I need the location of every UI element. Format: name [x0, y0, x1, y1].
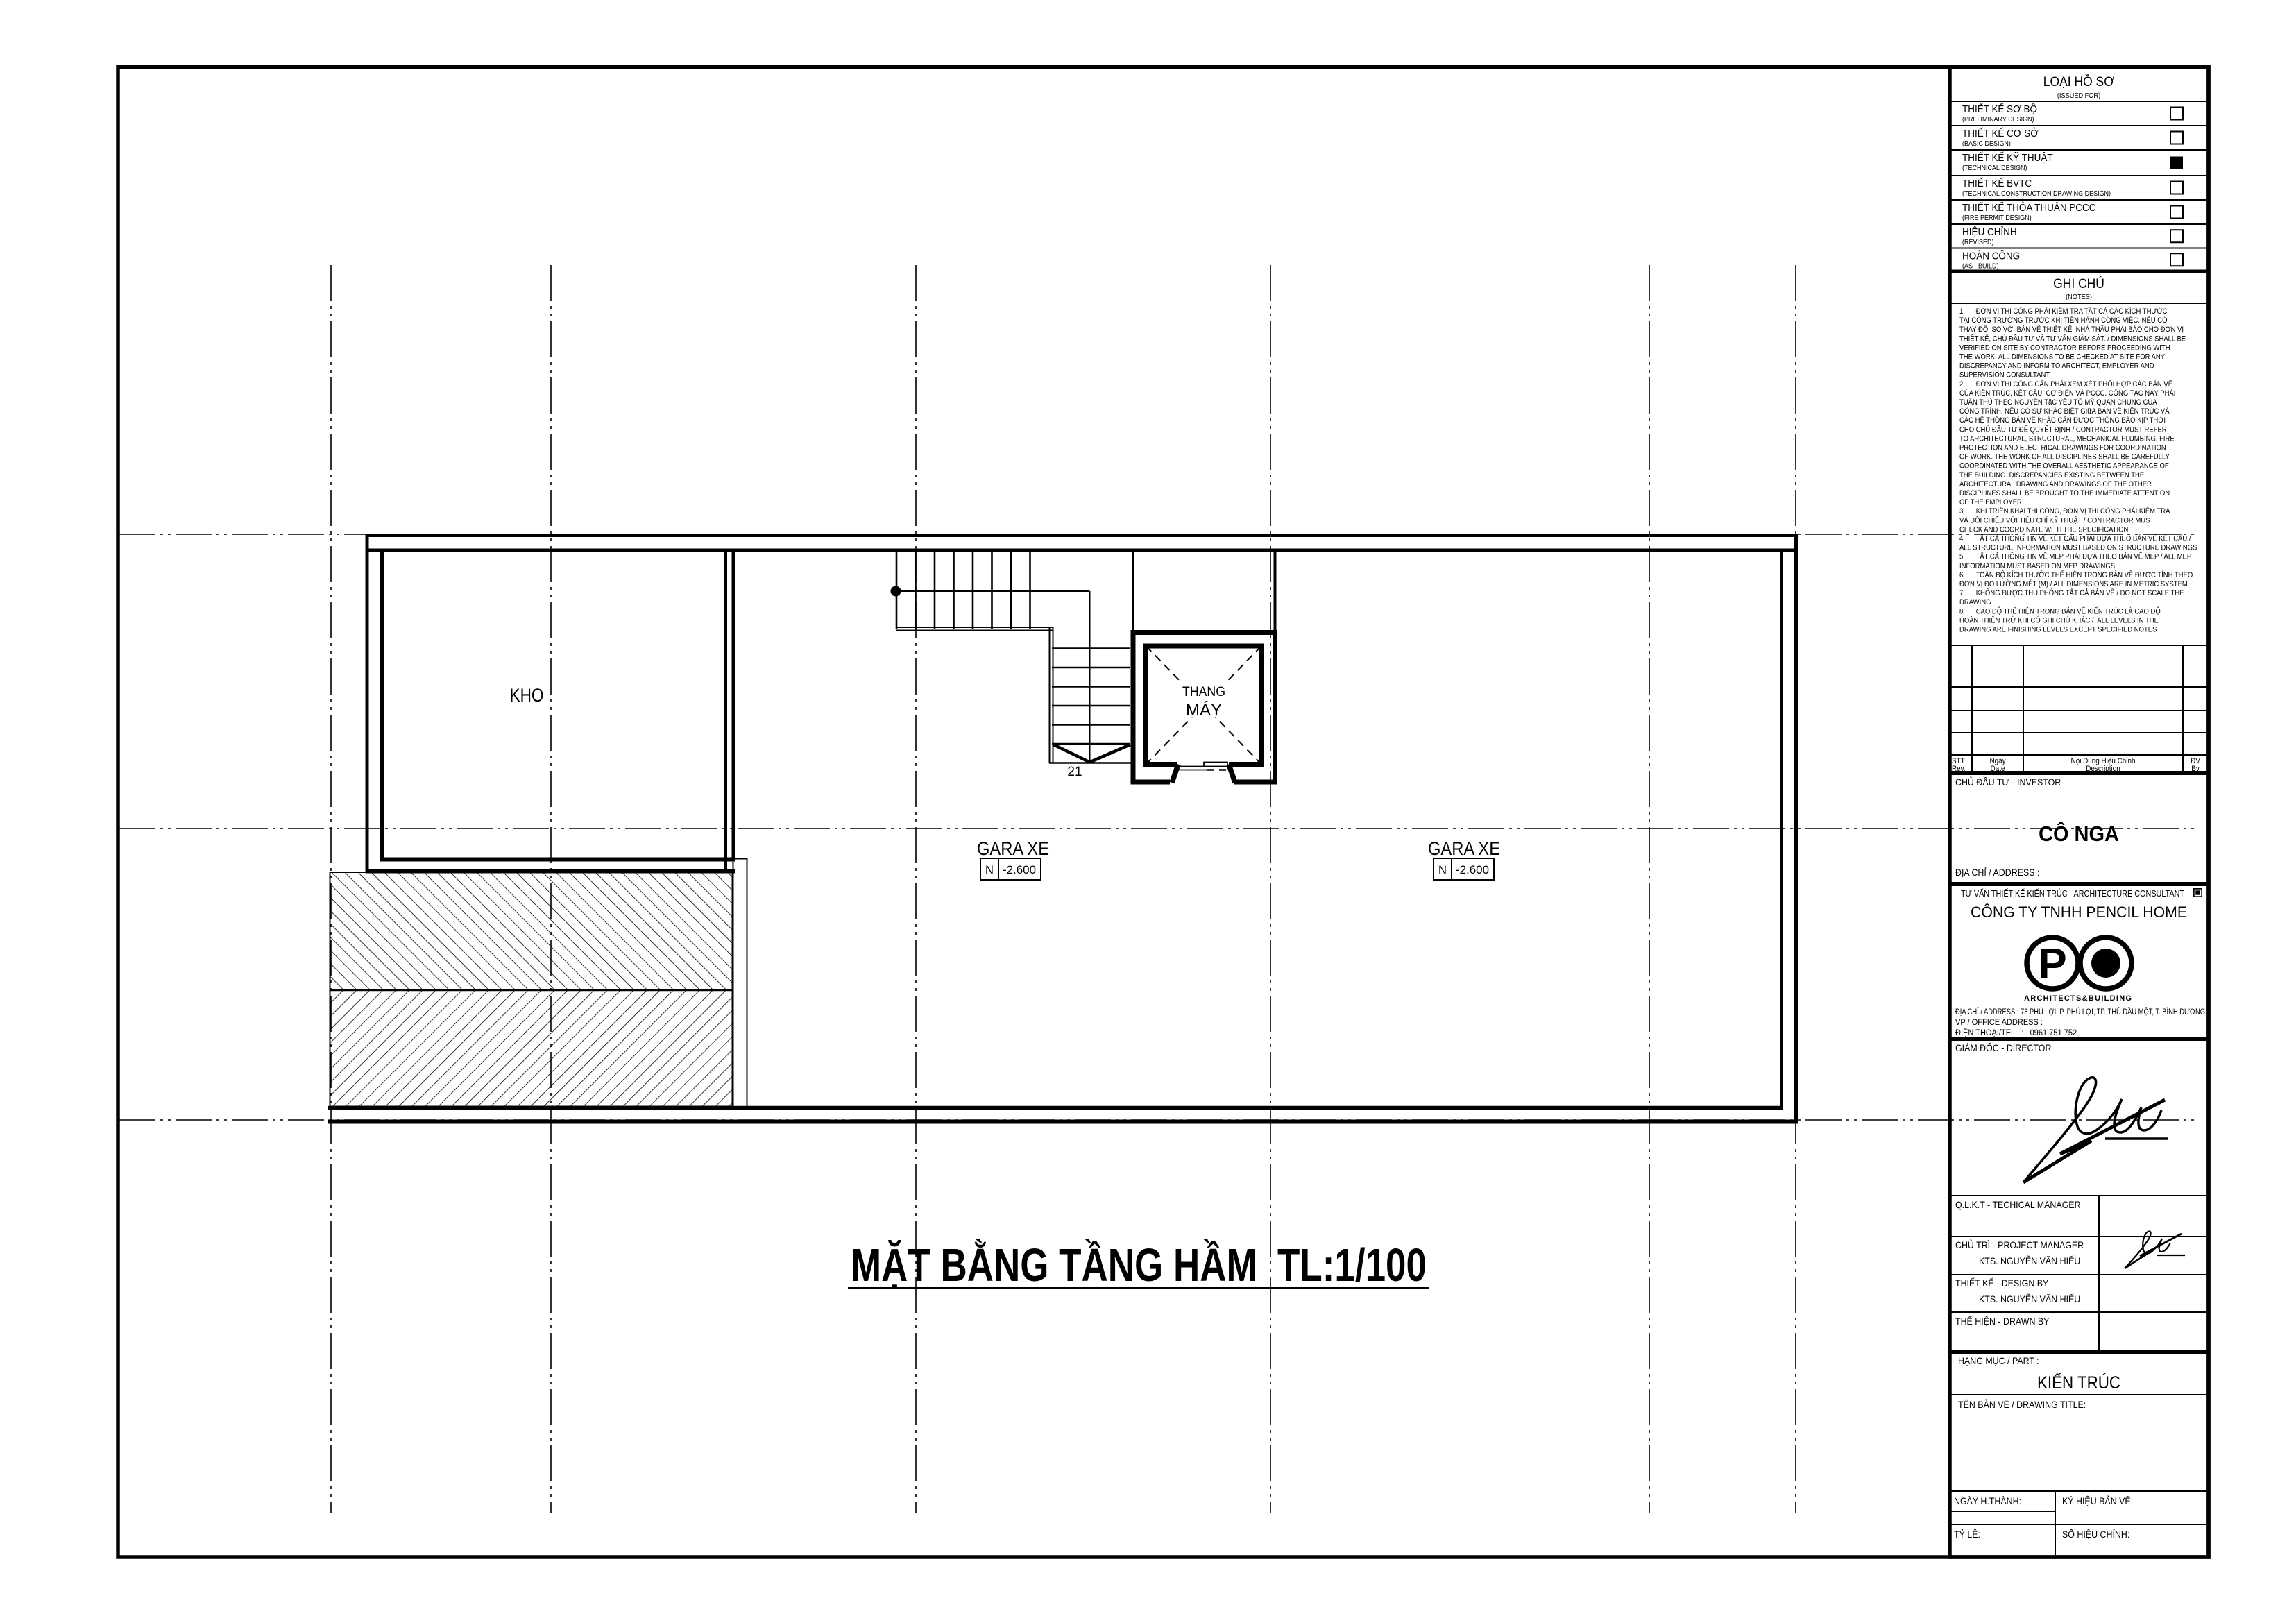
svg-text:MẶT BẰNG TẦNG HẦM TL:1/100: MẶT BẰNG TẦNG HẦM TL:1/100: [851, 1239, 1427, 1291]
svg-text:GARA XE: GARA XE: [1428, 838, 1500, 859]
svg-text:SỐ HIỆU CHỈNH:: SỐ HIỆU CHỈNH:: [2062, 1529, 2129, 1540]
svg-text:VP / OFFICE ADDRESS :: VP / OFFICE ADDRESS :: [1955, 1019, 2043, 1027]
svg-text:TƯ VẤN THIẾT KẾ KIẾN TRÚC - AR: TƯ VẤN THIẾT KẾ KIẾN TRÚC - ARCHITECTURE…: [1961, 888, 2184, 899]
svg-text:(TECHNICAL CONSTRUCTION DRAWIN: (TECHNICAL CONSTRUCTION DRAWING DESIGN): [1962, 190, 2111, 198]
svg-text:THIẾT KẾ CƠ SỞ: THIẾT KẾ CƠ SỞ: [1962, 126, 2039, 139]
svg-text:CÔNG TY TNHH PENCIL HOME: CÔNG TY TNHH PENCIL HOME: [1971, 903, 2187, 921]
svg-text:THIẾT KẾ THỎA THUẬN PCCC: THIẾT KẾ THỎA THUẬN PCCC: [1962, 201, 2096, 214]
svg-text:ĐỊA CHỈ / ADDRESS :: ĐỊA CHỈ / ADDRESS :: [1955, 867, 2039, 878]
svg-text:TỶ LỆ:: TỶ LỆ:: [1954, 1529, 1980, 1540]
svg-text:KTS. NGUYỄN VĂN HIẾU: KTS. NGUYỄN VĂN HIẾU: [1979, 1256, 2080, 1267]
svg-text:(ISSUED FOR): (ISSUED FOR): [2057, 92, 2100, 100]
svg-text:GHI CHÚ: GHI CHÚ: [2053, 275, 2104, 291]
svg-text:N: N: [985, 864, 994, 876]
svg-text:KIẾN TRÚC: KIẾN TRÚC: [2037, 1373, 2120, 1393]
svg-text:THIẾT KẾ KỸ THUẬT: THIẾT KẾ KỸ THUẬT: [1962, 151, 2053, 164]
svg-text:NGÀY H.THÀNH:: NGÀY H.THÀNH:: [1954, 1496, 2021, 1507]
svg-text:THIẾT KẾ - DESIGN BY: THIẾT KẾ - DESIGN BY: [1955, 1278, 2049, 1289]
svg-text:(FIRE PERMIT DESIGN): (FIRE PERMIT DESIGN): [1962, 214, 2032, 223]
svg-text:THỂ HIỆN - DRAWN BY: THỂ HIỆN - DRAWN BY: [1955, 1316, 2050, 1327]
svg-text:ARCHITECTS&BUILDING: ARCHITECTS&BUILDING: [2024, 994, 2134, 1003]
svg-text:(NOTES): (NOTES): [2066, 294, 2092, 301]
svg-text:21: 21: [1067, 765, 1082, 779]
svg-text:THANG: THANG: [1182, 685, 1225, 699]
svg-text:1. ĐƠN VỊ THI CÔNG PHẢI K: 1. ĐƠN VỊ THI CÔNG PHẢI KIỂM TRA TẤT CẢ …: [1959, 306, 2199, 634]
svg-text:CÔ NGA: CÔ NGA: [2039, 821, 2119, 846]
svg-text:Nội Dung Hiệu Chỉnh: Nội Dung Hiệu Chỉnh: [2071, 757, 2136, 766]
svg-text:KHO: KHO: [510, 685, 544, 706]
svg-text:TÊN BẢN VẼ / DRAWING TITLE:: TÊN BẢN VẼ / DRAWING TITLE:: [1958, 1400, 2086, 1411]
svg-text:(REVISED): (REVISED): [1962, 239, 1993, 247]
svg-text:(PRELIMINARY DESIGN): (PRELIMINARY DESIGN): [1962, 116, 2034, 124]
svg-text:THIẾT KẾ SƠ BỘ: THIẾT KẾ SƠ BỘ: [1962, 103, 2037, 115]
svg-text:HOÀN CÔNG: HOÀN CÔNG: [1962, 250, 2020, 262]
svg-text:CHỦ TRÌ - PROJECT MANAGER: CHỦ TRÌ - PROJECT MANAGER: [1955, 1240, 2084, 1251]
svg-text:GIÁM ĐỐC - DIRECTOR: GIÁM ĐỐC - DIRECTOR: [1955, 1043, 2051, 1054]
svg-text:-2.600: -2.600: [1003, 864, 1036, 876]
svg-text:P: P: [2038, 940, 2066, 988]
svg-text:HIỆU CHỈNH: HIỆU CHỈNH: [1962, 226, 2017, 238]
svg-text:-2.600: -2.600: [1456, 864, 1489, 876]
svg-text:ĐIỆN THOẠI/TEL : 0961 751: ĐIỆN THOẠI/TEL : 0961 751 752: [1955, 1028, 2077, 1038]
svg-text:Ngày: Ngày: [1989, 758, 2006, 766]
svg-text:STT: STT: [1952, 758, 1965, 766]
svg-text:KTS. NGUYỄN VĂN HIẾU: KTS. NGUYỄN VĂN HIẾU: [1979, 1294, 2080, 1305]
svg-text:N: N: [1438, 864, 1447, 876]
svg-text:THIẾT KẾ BVTC: THIẾT KẾ BVTC: [1962, 177, 2032, 189]
svg-text:KÝ HIỆU BẢN VẼ:: KÝ HIỆU BẢN VẼ:: [2062, 1496, 2133, 1507]
svg-text:Q.L.K.T - TECHICAL MANAGER: Q.L.K.T - TECHICAL MANAGER: [1955, 1200, 2081, 1211]
svg-text:CHỦ ĐẦU TƯ - INVESTOR: CHỦ ĐẦU TƯ - INVESTOR: [1955, 777, 2061, 788]
svg-text:(AS - BUILD): (AS - BUILD): [1962, 262, 1998, 271]
svg-text:ĐV: ĐV: [2191, 758, 2200, 766]
svg-text:ĐỊA CHỈ / ADDRESS : 73 PHÚ L: ĐỊA CHỈ / ADDRESS : 73 PHÚ LỢI, P. PHÚ L…: [1955, 1008, 2205, 1017]
svg-text:LOẠI HỒ SƠ: LOẠI HỒ SƠ: [2043, 74, 2115, 89]
svg-text:MÁY: MÁY: [1186, 701, 1222, 720]
svg-text:GARA XE: GARA XE: [977, 838, 1049, 859]
svg-text:(BASIC DESIGN): (BASIC DESIGN): [1962, 140, 2011, 148]
svg-text:HẠNG MỤC / PART :: HẠNG MỤC / PART :: [1958, 1356, 2039, 1367]
svg-text:(TECHNICAL DESIGN): (TECHNICAL DESIGN): [1962, 164, 2027, 173]
